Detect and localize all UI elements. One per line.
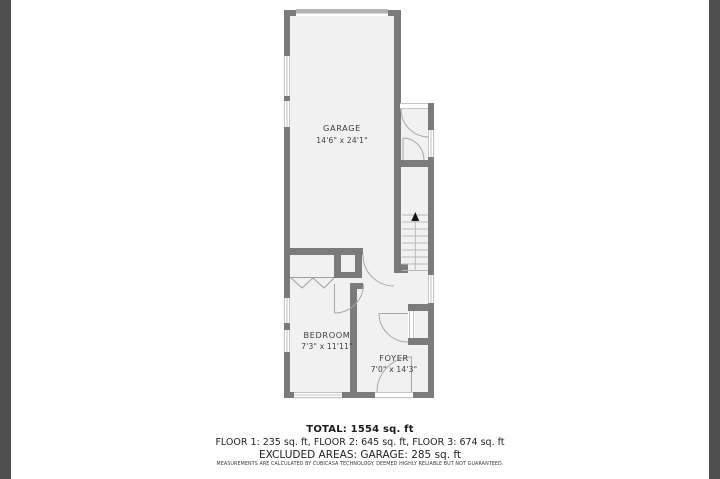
garage-window-2	[284, 101, 291, 127]
entry-door-opening	[428, 130, 435, 157]
excluded-areas: EXCLUDED AREAS: GARAGE: 285 sq. ft	[0, 449, 720, 461]
bedroom-dimensions: 7'3" x 11'11"	[301, 342, 352, 351]
total-area: TOTAL: 1554 sq. ft	[0, 423, 720, 437]
garage-door	[296, 9, 388, 16]
foyer-closet-opening	[408, 311, 415, 338]
foyer-dimensions: 7'0" x 14'3"	[371, 365, 418, 374]
garage-window-1	[284, 56, 291, 96]
garage-label: GARAGE	[323, 123, 361, 133]
garage-dimensions: 14'6" x 24'1"	[316, 136, 367, 145]
front-door-opening	[375, 392, 413, 399]
floorplan-drawing: GARAGE 14'6" x 24'1" BEDROOM 7'3" x 11'1…	[0, 0, 720, 479]
bedroom-window-2	[284, 330, 291, 352]
bedroom-window-1	[284, 298, 291, 323]
floor-areas: FLOOR 1: 235 sq. ft, FLOOR 2: 645 sq. ft…	[0, 437, 720, 449]
foyer-window	[428, 275, 435, 303]
bedroom-window-bottom	[294, 392, 342, 399]
foyer-label: FOYER	[379, 353, 409, 363]
bedroom-label: BEDROOM	[304, 330, 351, 340]
area-summary: TOTAL: 1554 sq. ft FLOOR 1: 235 sq. ft, …	[0, 423, 720, 469]
alcove-top-opening	[400, 103, 428, 109]
floorplan-page: { "viewer": { "edge_bar_color": "#4f4f4f…	[0, 0, 720, 479]
disclaimer-text: MEASUREMENTS ARE CALCULATED BY CUBICASA …	[0, 461, 720, 469]
